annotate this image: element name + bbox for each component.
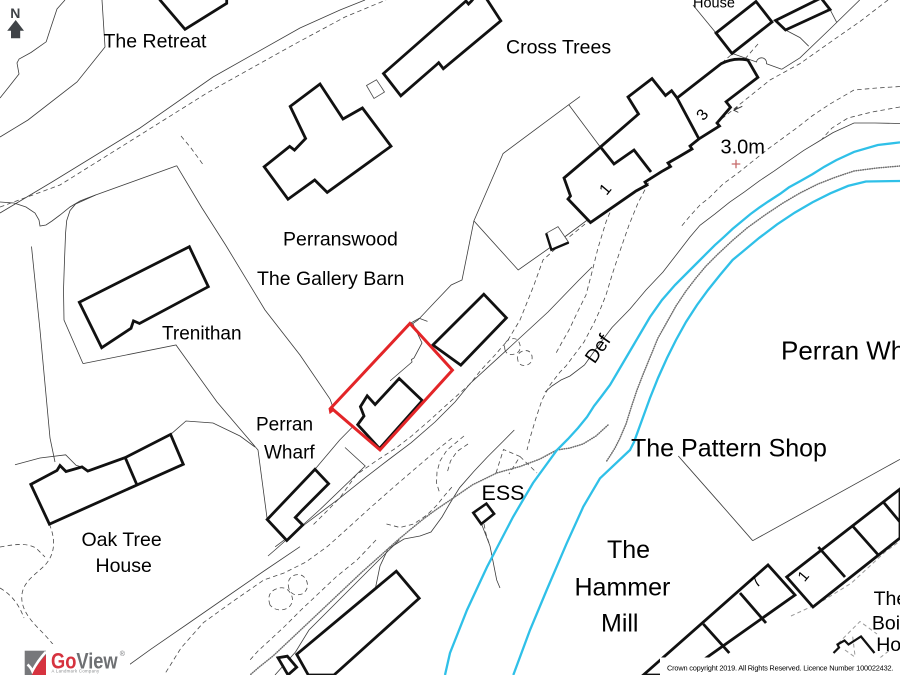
svg-text:Perran: Perran	[256, 415, 313, 436]
svg-text:Wharf: Wharf	[264, 443, 315, 464]
svg-text:3.0m: 3.0m	[721, 137, 765, 159]
svg-text:Trenithan: Trenithan	[162, 324, 242, 345]
svg-text:N: N	[10, 5, 20, 21]
svg-text:Perranswood: Perranswood	[283, 229, 398, 251]
svg-text:®: ®	[120, 650, 126, 658]
svg-text:Perran Wh: Perran Wh	[781, 336, 900, 366]
svg-text:The: The	[607, 536, 650, 564]
svg-text:The Pattern Shop: The Pattern Shop	[631, 435, 827, 463]
svg-text:House: House	[96, 555, 152, 577]
svg-text:House: House	[693, 0, 735, 12]
svg-text:Hammer: Hammer	[575, 574, 671, 602]
svg-text:Cross Trees: Cross Trees	[506, 37, 611, 59]
svg-text:A Landmark Company: A Landmark Company	[52, 669, 100, 674]
svg-text:ESS: ESS	[482, 481, 525, 505]
svg-text:Boiler: Boiler	[872, 613, 900, 635]
svg-text:Mill: Mill	[601, 610, 639, 638]
svg-text:The: The	[874, 588, 900, 610]
svg-text:The Retreat: The Retreat	[104, 31, 208, 53]
svg-text:The Gallery Barn: The Gallery Barn	[257, 268, 404, 290]
svg-text:Oak Tree: Oak Tree	[82, 529, 162, 551]
svg-text:House: House	[876, 634, 900, 656]
svg-text:Crown copyright 2019. All Righ: Crown copyright 2019. All Rights Reserve…	[667, 664, 894, 673]
